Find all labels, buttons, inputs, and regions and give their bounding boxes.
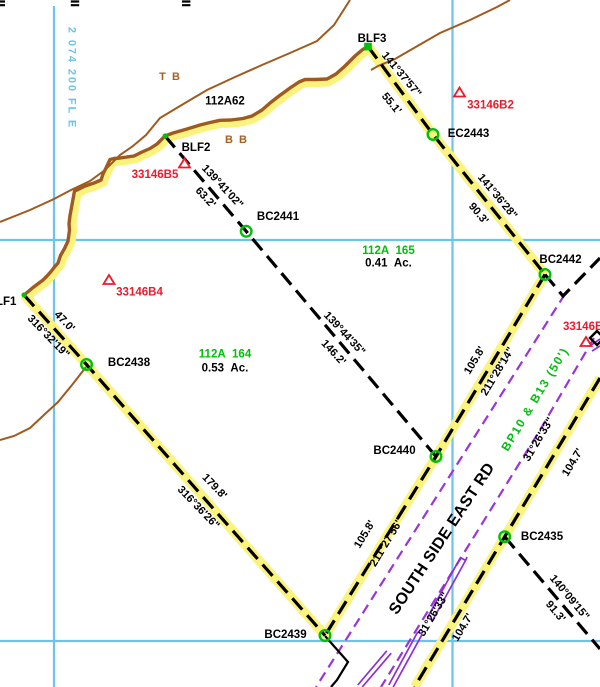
svg-text:BC2442: BC2442 — [539, 254, 581, 266]
svg-text:BLF2: BLF2 — [182, 142, 211, 154]
svg-text:EC2443: EC2443 — [448, 128, 490, 140]
svg-text:BC2440: BC2440 — [373, 445, 415, 457]
svg-text:112A 165: 112A 165 — [362, 245, 415, 257]
svg-text:B B: B B — [225, 134, 247, 146]
svg-text:33146B2: 33146B2 — [467, 100, 514, 112]
svg-text:0.41 Ac.: 0.41 Ac. — [365, 258, 412, 270]
svg-text:0.53 Ac.: 0.53 Ac. — [202, 363, 249, 375]
svg-text:BC2441: BC2441 — [257, 211, 300, 223]
svg-text:BLF3: BLF3 — [358, 33, 387, 45]
svg-text:BLF1: BLF1 — [0, 296, 17, 308]
svg-text:33146B4: 33146B4 — [116, 287, 163, 299]
svg-text:112A62: 112A62 — [205, 96, 245, 108]
svg-text:BC2438: BC2438 — [108, 357, 151, 369]
svg-text:33146B5: 33146B5 — [132, 169, 179, 181]
svg-text:BC2439: BC2439 — [264, 629, 306, 641]
svg-text:33146B3: 33146B3 — [563, 321, 600, 333]
svg-text:T B: T B — [159, 71, 180, 83]
svg-text:112A 164: 112A 164 — [199, 349, 252, 361]
svg-text:2 074 200 FL E: 2 074 200 FL E — [66, 27, 78, 129]
svg-text:BC2435: BC2435 — [521, 531, 564, 543]
